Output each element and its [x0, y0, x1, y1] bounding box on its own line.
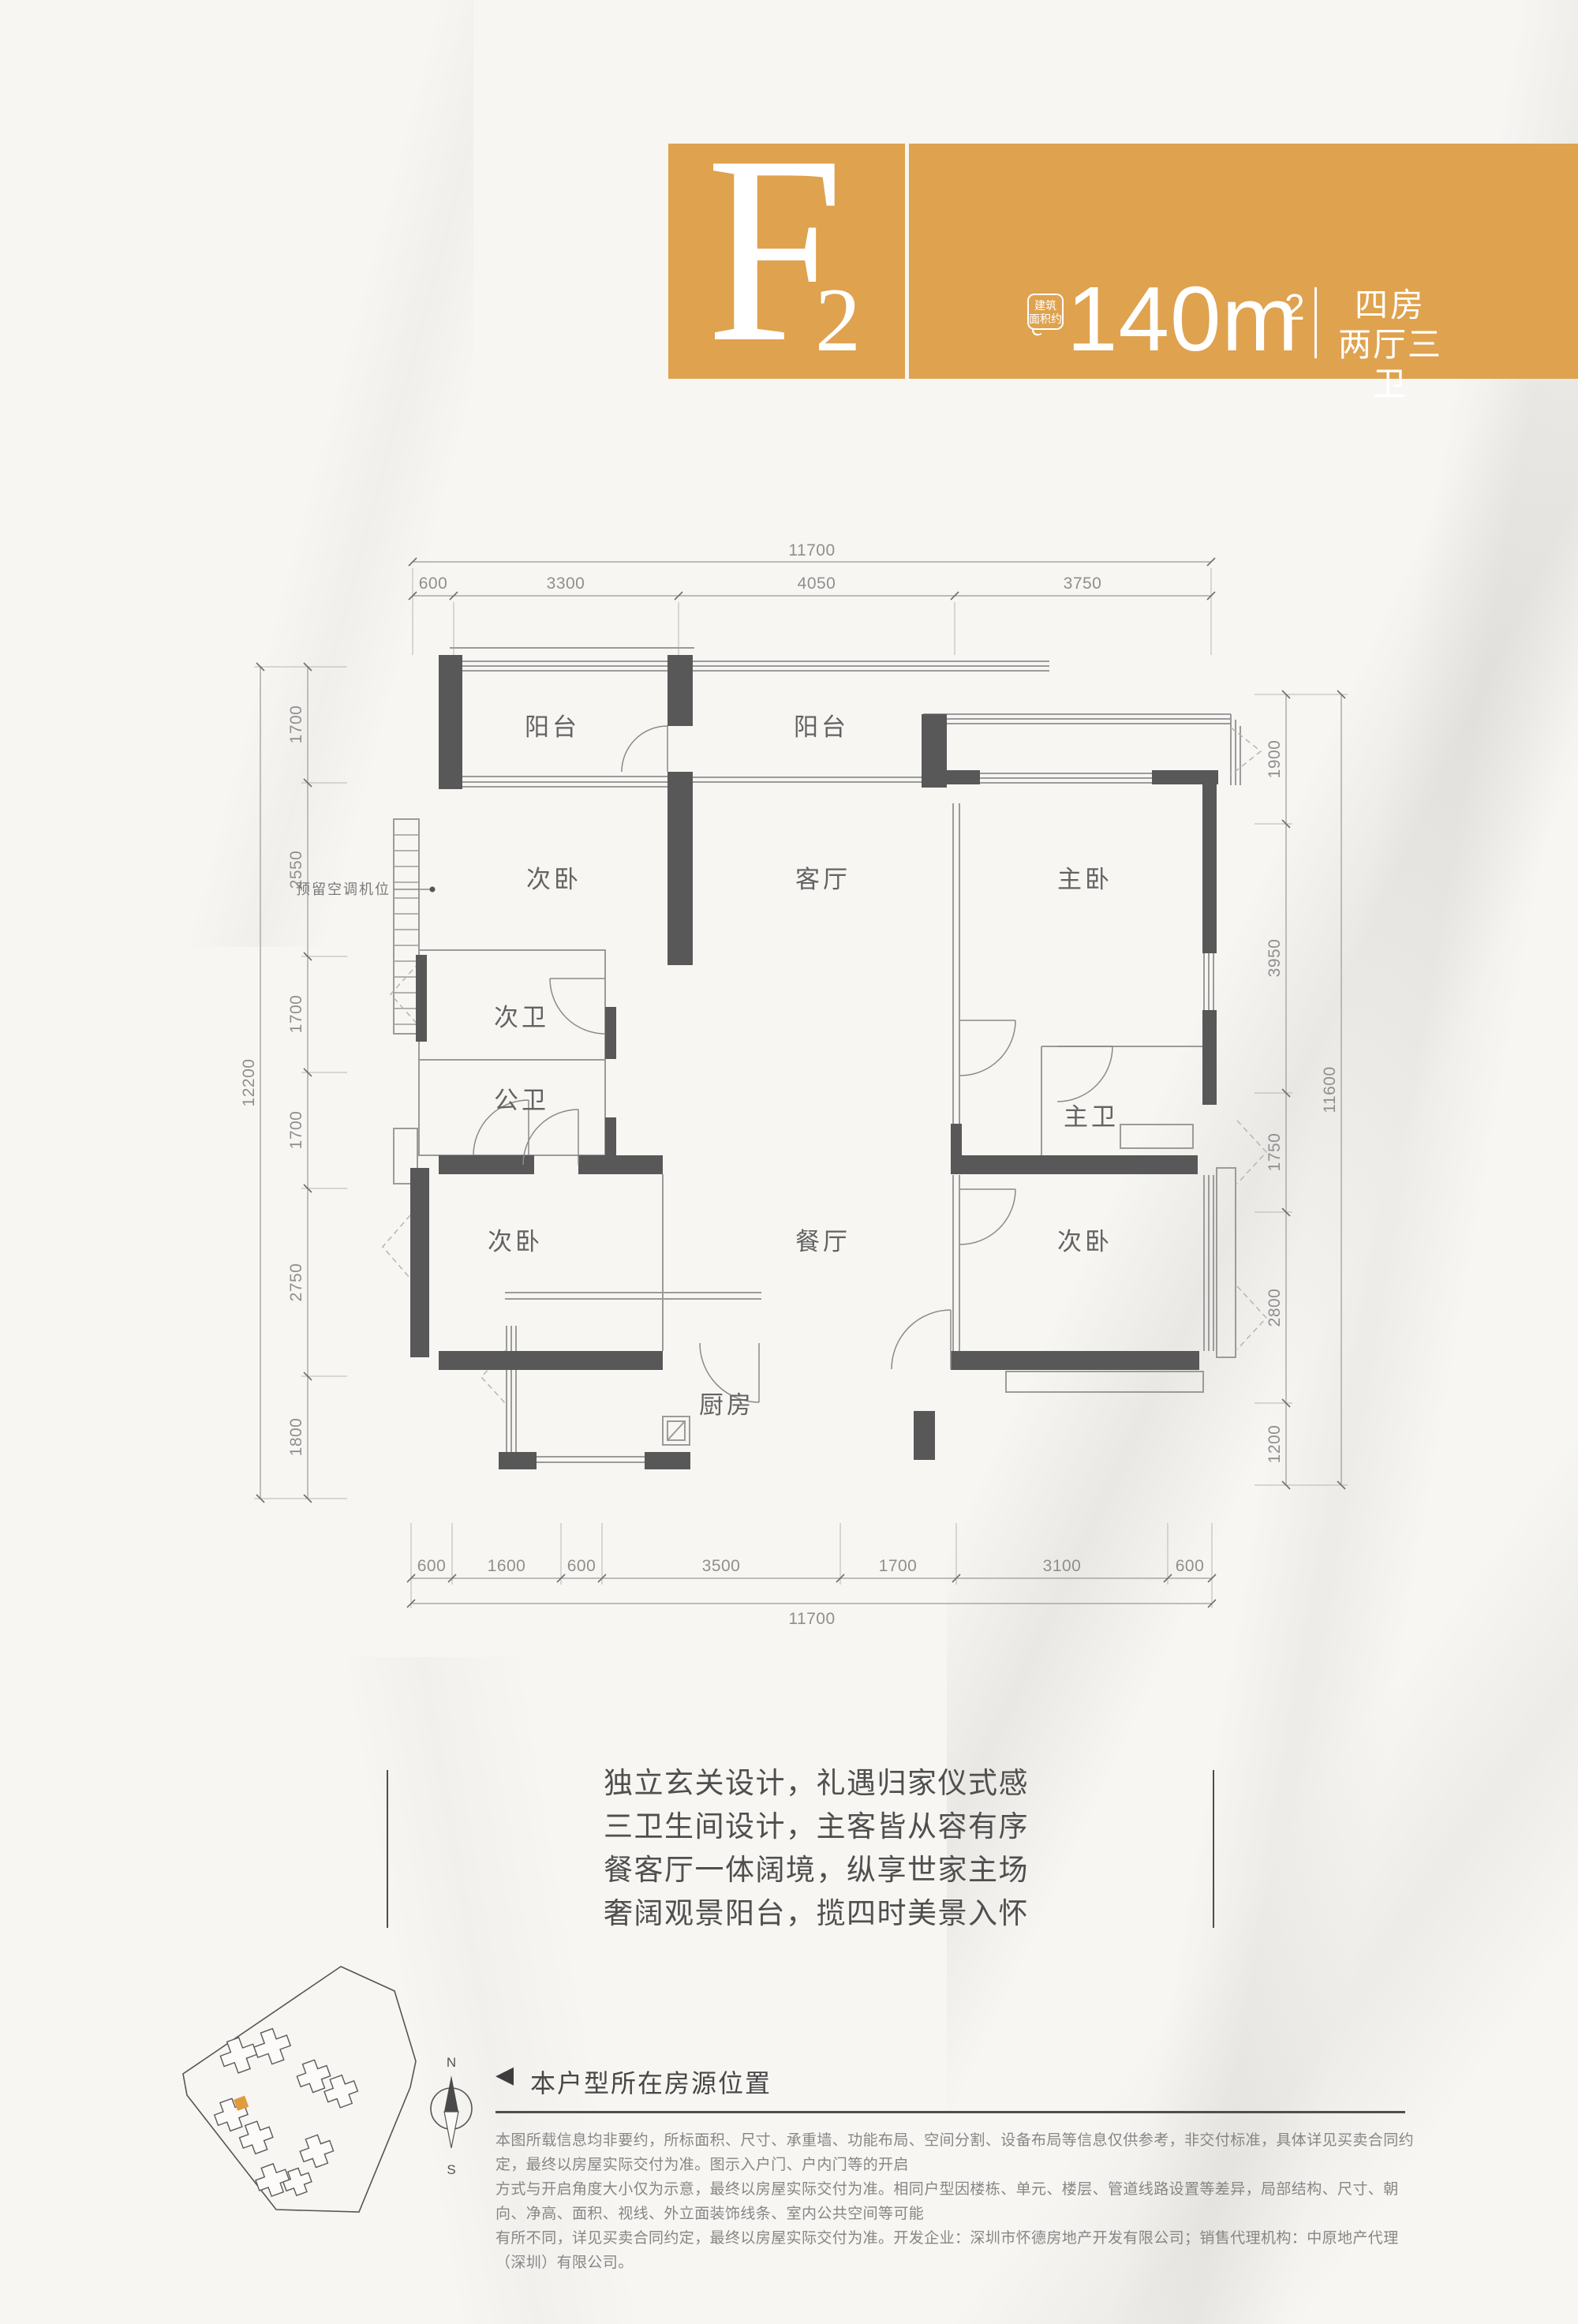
dim-left-4: 1700 — [287, 1111, 305, 1150]
site-buildings — [211, 2022, 361, 2206]
area-badge: 建筑 面积约 — [1027, 294, 1064, 330]
dim-left-6: 1800 — [287, 1418, 305, 1457]
compass-needle-south — [444, 2112, 458, 2148]
dim-bottom-total: 11700 — [788, 1610, 835, 1628]
dim-top-2: 3300 — [547, 574, 585, 593]
ac-note-label: 预留空调机位 — [296, 881, 391, 897]
building-cluster-1 — [217, 2022, 294, 2079]
room-count-line1: 四房 — [1328, 286, 1453, 325]
room-labels: 阳台 阳台 次卧 客厅 主卧 次卫 公卫 主卫 次卧 餐厅 次卧 厨房 — [488, 713, 1119, 1419]
dim-left-total: 12200 — [240, 1059, 258, 1107]
compass-needle-north — [444, 2075, 458, 2112]
windows-and-partitions — [394, 648, 1240, 1462]
disclaimer: 本图所载信息均非要约，所标面积、尺寸、承重墙、功能布局、空间分割、设备布局等信息… — [495, 2128, 1427, 2275]
dim-left-5: 2750 — [287, 1263, 305, 1302]
dimension-labels: 11700 600 3300 4050 3750 600 1600 600 35… — [240, 541, 1339, 1628]
dim-bottom-5: 1700 — [879, 1557, 918, 1575]
dim-right-total: 11600 — [1321, 1066, 1339, 1113]
dim-bottom-7: 600 — [1176, 1557, 1205, 1575]
footer-divider — [495, 2111, 1405, 2113]
ac-note-group: 预留空调机位 — [296, 881, 436, 897]
dim-bottom-2: 1600 — [488, 1557, 526, 1575]
dim-left-1: 1700 — [287, 705, 305, 744]
room-count-line2: 两厅三卫 — [1328, 325, 1453, 404]
door-arcs — [473, 726, 1112, 1402]
room-kitchen: 厨房 — [699, 1391, 754, 1419]
marketing-rule-left — [387, 1770, 388, 1928]
room-bed-top-left: 次卧 — [526, 866, 581, 893]
unit-banner-right: 建筑 面积约 140m 2 四房 两厅三卫 — [909, 144, 1578, 379]
compass-south-label: S — [447, 2162, 455, 2177]
room-bath-second: 次卫 — [494, 1004, 549, 1031]
room-bath-master: 主卫 — [1064, 1103, 1119, 1131]
room-bath-public: 公卫 — [494, 1087, 549, 1114]
dim-right-4: 2800 — [1266, 1289, 1284, 1327]
floorplan-drawing: 11700 600 3300 4050 3750 600 1600 600 35… — [221, 537, 1357, 1634]
dim-top-total: 11700 — [788, 541, 835, 559]
room-count-block: 四房 两厅三卫 — [1328, 286, 1453, 404]
disclaimer-line-2: 方式与开启角度大小仅为示意，最终以房屋实际交付为准。相同户型因楼栋、单元、楼层、… — [495, 2177, 1427, 2226]
room-bed-bottom-left: 次卧 — [488, 1228, 543, 1256]
ac-platform-ladder — [394, 835, 419, 1024]
area-badge-line2: 面积约 — [1029, 312, 1062, 326]
dim-bottom-1: 600 — [417, 1557, 447, 1575]
compass-north-label: N — [447, 2055, 456, 2070]
room-living: 客厅 — [795, 866, 851, 893]
room-dining: 餐厅 — [795, 1228, 851, 1256]
area-value: 140m — [1067, 273, 1299, 365]
dim-bottom-4: 3500 — [702, 1557, 741, 1575]
room-balcony-center: 阳台 — [794, 713, 849, 741]
location-marker-icon: ◀ — [495, 2061, 514, 2090]
ac-note-dot — [430, 887, 436, 893]
compass: N S — [426, 2040, 481, 2182]
dim-right-3: 1750 — [1266, 1133, 1284, 1172]
marketing-copy: 独立玄关设计，礼遇归家仪式感 三卫生间设计，主客皆从容有序 餐客厅一体阔境，纵享… — [604, 1761, 1045, 1935]
dim-right-5: 1200 — [1266, 1425, 1284, 1464]
marketing-rule-right — [1213, 1770, 1214, 1928]
marketing-line-3: 餐客厅一体阔境，纵享世家主场 — [604, 1848, 1045, 1892]
marketing-line-2: 三卫生间设计，主客皆从容有序 — [604, 1805, 1045, 1848]
room-master: 主卧 — [1057, 866, 1112, 893]
marketing-line-4: 奢阔观景阳台，揽四时美景入怀 — [604, 1892, 1045, 1935]
marketing-line-1: 独立玄关设计，礼遇归家仪式感 — [604, 1761, 1045, 1805]
banner-divider-rule — [1314, 287, 1317, 358]
building-cluster-4 — [297, 2131, 337, 2170]
dim-bottom-6: 3100 — [1043, 1557, 1082, 1575]
disclaimer-line-3: 有所不同，详见买卖合同约定，最终以房屋实际交付为准。开发企业：深圳市怀德房地产开… — [495, 2226, 1427, 2275]
unit-number: 2 — [815, 275, 861, 366]
room-balcony-left: 阳台 — [525, 713, 580, 741]
dim-top-4: 3750 — [1064, 574, 1102, 593]
room-bed-bottom-right: 次卧 — [1057, 1228, 1112, 1256]
location-label: 本户型所在房源位置 — [530, 2064, 772, 2100]
dim-bottom-3: 600 — [567, 1557, 596, 1575]
dim-top-1: 600 — [419, 574, 448, 593]
dim-top-3: 4050 — [798, 574, 836, 593]
floorplan-poster: { "banner": { "unit_letter": "F", "unit_… — [0, 0, 1578, 2324]
area-badge-line1: 建筑 — [1029, 299, 1062, 312]
building-cluster-2 — [294, 2049, 361, 2117]
casement-dashes — [383, 728, 1266, 1405]
dim-right-2: 3950 — [1266, 939, 1284, 978]
area-superscript: 2 — [1284, 289, 1305, 325]
unit-banner-left: F 2 — [668, 144, 905, 379]
dim-right-1: 1900 — [1266, 740, 1284, 779]
disclaimer-line-1: 本图所载信息均非要约，所标面积、尺寸、承重墙、功能布局、空间分割、设备布局等信息… — [495, 2128, 1427, 2177]
dim-left-3: 1700 — [287, 995, 305, 1034]
